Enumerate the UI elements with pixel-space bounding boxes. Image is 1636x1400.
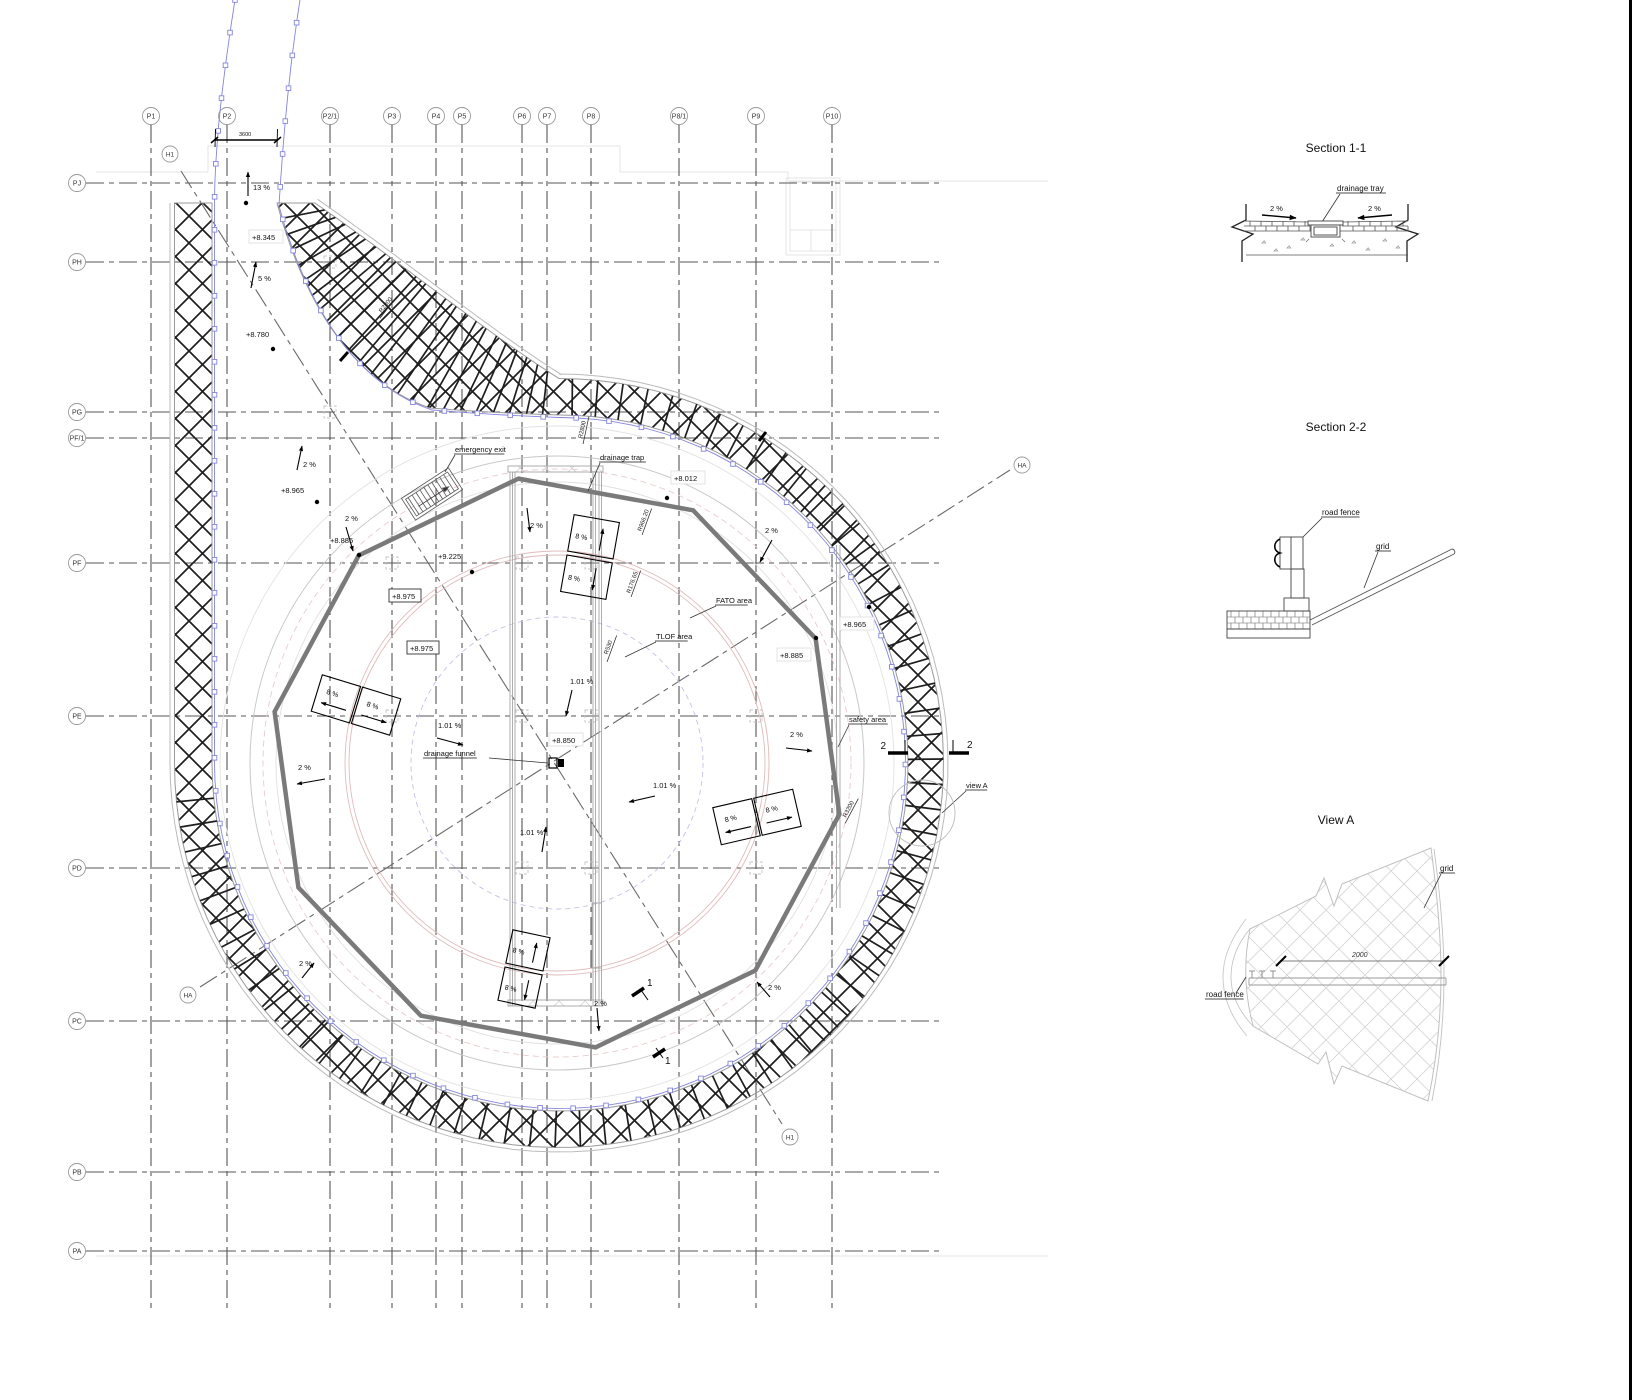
- svg-text:1: 1: [665, 1056, 671, 1067]
- svg-text:2 %: 2 %: [298, 763, 311, 772]
- svg-text:PJ: PJ: [73, 181, 81, 188]
- svg-text:+8.965: +8.965: [843, 620, 866, 629]
- svg-text:PE: PE: [72, 714, 82, 721]
- svg-text:View A: View A: [1318, 813, 1354, 827]
- svg-text:P9: P9: [752, 114, 761, 121]
- svg-text:P7: P7: [543, 114, 552, 121]
- svg-text:P2: P2: [223, 114, 232, 121]
- svg-text:+8.975: +8.975: [392, 592, 415, 601]
- svg-text:P5: P5: [458, 114, 467, 121]
- svg-text:view A: view A: [966, 781, 988, 790]
- svg-text:P4: P4: [432, 114, 441, 121]
- svg-text:2 %: 2 %: [1368, 204, 1381, 213]
- svg-text:H1: H1: [786, 1135, 795, 1142]
- svg-text:grid: grid: [1376, 542, 1389, 551]
- svg-text:+8.885: +8.885: [780, 651, 803, 660]
- svg-text:PB: PB: [72, 1170, 82, 1177]
- svg-text:2 %: 2 %: [790, 730, 803, 739]
- svg-text:PC: PC: [72, 1019, 82, 1026]
- svg-text:5 %: 5 %: [258, 274, 271, 283]
- svg-text:P8/1: P8/1: [672, 114, 687, 121]
- svg-text:1.01 %: 1.01 %: [520, 828, 544, 837]
- svg-text:road fence: road fence: [1322, 508, 1360, 517]
- svg-text:13 %: 13 %: [253, 183, 270, 192]
- svg-text:2 %: 2 %: [299, 959, 312, 968]
- svg-text:+8.965: +8.965: [281, 486, 304, 495]
- svg-text:drainage funnel: drainage funnel: [424, 749, 476, 758]
- svg-text:PA: PA: [73, 1249, 82, 1256]
- svg-text:H1: H1: [166, 152, 175, 159]
- svg-text:2 %: 2 %: [530, 521, 543, 530]
- svg-text:3600: 3600: [239, 132, 251, 138]
- svg-text:+9.225: +9.225: [438, 552, 461, 561]
- svg-text:2 %: 2 %: [303, 460, 316, 469]
- svg-text:2 %: 2 %: [594, 999, 607, 1008]
- svg-text:+8.885: +8.885: [330, 536, 353, 545]
- svg-text:P2/1: P2/1: [323, 114, 338, 121]
- svg-text:1.01 %: 1.01 %: [438, 721, 462, 730]
- svg-text:PD: PD: [72, 866, 82, 873]
- svg-text:2: 2: [967, 740, 973, 751]
- svg-text:drainage trap: drainage trap: [600, 453, 644, 462]
- svg-text:FATO area: FATO area: [716, 596, 753, 605]
- svg-text:safety area: safety area: [849, 715, 887, 724]
- svg-text:+8.345: +8.345: [252, 233, 275, 242]
- svg-text:TLOF area: TLOF area: [656, 632, 693, 641]
- svg-text:2000: 2000: [1351, 952, 1368, 959]
- svg-text:1.01 %: 1.01 %: [570, 677, 594, 686]
- svg-text:2: 2: [880, 741, 886, 752]
- svg-text:1: 1: [647, 978, 653, 989]
- svg-text:drainage tray: drainage tray: [1337, 184, 1384, 193]
- svg-text:P1: P1: [147, 114, 156, 121]
- svg-text:grid: grid: [1440, 864, 1453, 873]
- svg-text:2 %: 2 %: [768, 983, 781, 992]
- svg-text:P8: P8: [587, 114, 596, 121]
- svg-text:road fence: road fence: [1206, 990, 1244, 999]
- svg-text:P10: P10: [826, 114, 839, 121]
- svg-text:+8.780: +8.780: [246, 330, 269, 339]
- svg-text:+8.850: +8.850: [552, 736, 575, 745]
- svg-text:P6: P6: [518, 114, 527, 121]
- svg-text:+8.975: +8.975: [410, 644, 433, 653]
- svg-text:Section 2-2: Section 2-2: [1306, 420, 1367, 434]
- svg-text:2 %: 2 %: [765, 526, 778, 535]
- svg-text:P3: P3: [388, 114, 397, 121]
- svg-text:2 %: 2 %: [1270, 204, 1283, 213]
- svg-text:PF: PF: [73, 561, 82, 568]
- svg-text:+8.012: +8.012: [674, 474, 697, 483]
- svg-text:PH: PH: [72, 260, 82, 267]
- svg-text:HA: HA: [1017, 463, 1027, 470]
- svg-text:emergency exit: emergency exit: [455, 445, 507, 454]
- svg-text:HA: HA: [183, 993, 193, 1000]
- svg-text:1.01 %: 1.01 %: [653, 781, 677, 790]
- svg-text:2 %: 2 %: [345, 514, 358, 523]
- svg-text:PG: PG: [72, 410, 82, 417]
- svg-text:Section 1-1: Section 1-1: [1306, 141, 1367, 155]
- svg-text:PF/1: PF/1: [70, 436, 85, 443]
